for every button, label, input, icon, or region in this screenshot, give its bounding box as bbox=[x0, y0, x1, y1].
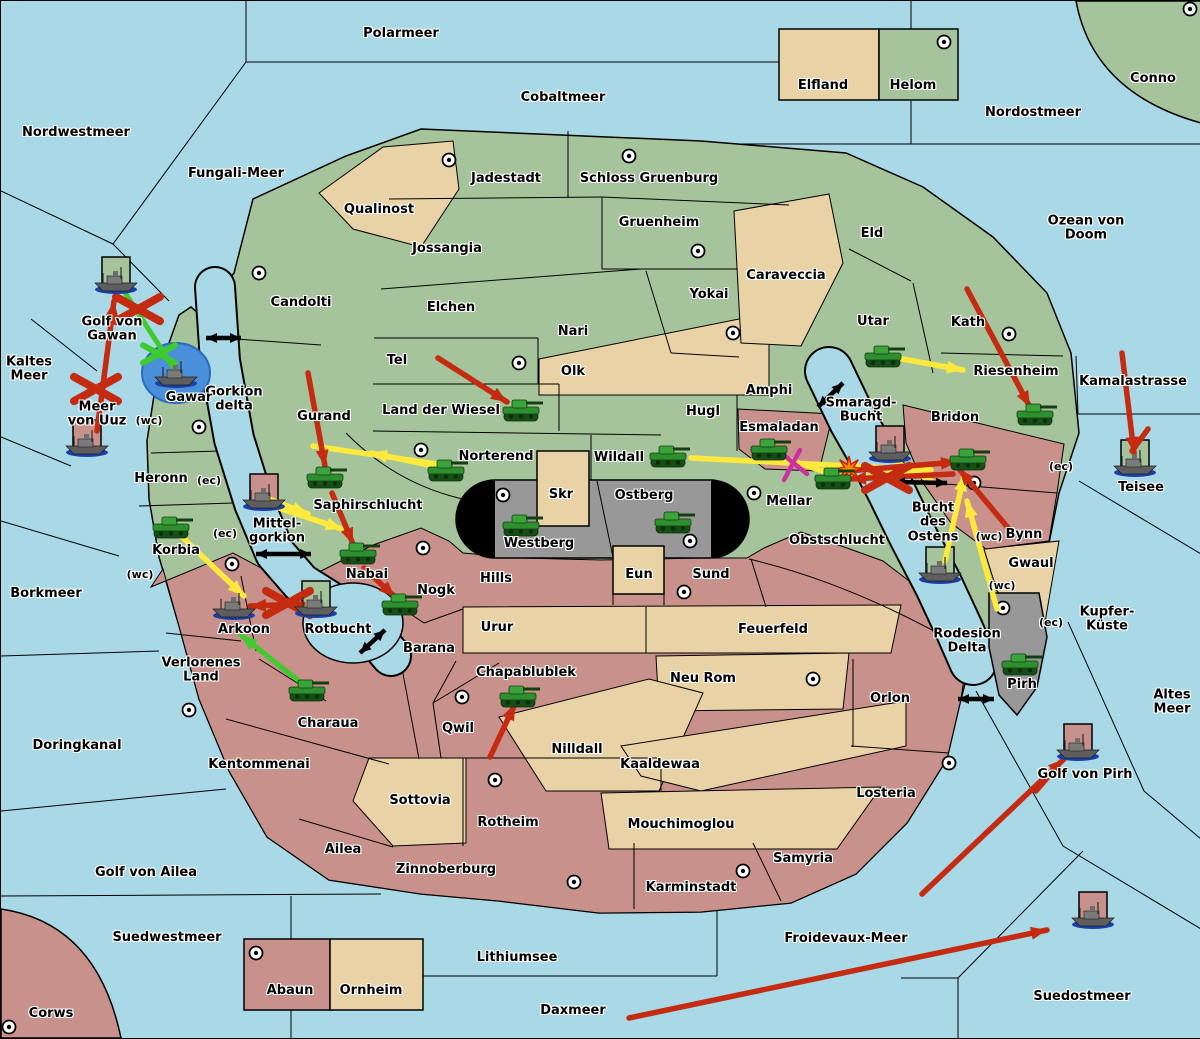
supply-center-dot bbox=[183, 704, 196, 717]
conno-corner bbox=[1076, 1, 1200, 123]
supply-center-dot bbox=[497, 489, 510, 502]
supply-center-dot bbox=[568, 876, 581, 889]
diplomacy-game-map: PolarmeerNordwestmeerFungali-MeerCobaltm… bbox=[0, 0, 1200, 1039]
supply-center-dot bbox=[623, 150, 636, 163]
supply-center-dot bbox=[748, 487, 761, 500]
supply-center-dot bbox=[3, 1021, 16, 1034]
elfland-box bbox=[779, 29, 879, 100]
supply-center-dot bbox=[692, 245, 705, 258]
supply-center-dot bbox=[250, 947, 263, 960]
attack-arrow-red bbox=[629, 927, 1047, 1018]
skr-box bbox=[537, 451, 589, 526]
attack-arrow-red bbox=[1122, 353, 1139, 453]
supply-center-dot bbox=[417, 542, 430, 555]
eun-box bbox=[613, 546, 664, 594]
supply-center-dot bbox=[489, 774, 502, 787]
supply-center-dot bbox=[193, 421, 206, 434]
failed-order-x bbox=[116, 297, 160, 321]
supply-center-dot bbox=[727, 327, 740, 340]
supply-center-dot bbox=[1003, 328, 1016, 341]
supply-center-dot bbox=[415, 444, 428, 457]
supply-center-dot bbox=[513, 357, 526, 370]
supply-center-dot bbox=[938, 36, 951, 49]
supply-center-dot bbox=[253, 267, 266, 280]
supply-center-dot bbox=[807, 673, 820, 686]
supply-center-dot bbox=[443, 154, 456, 167]
supply-center-dot bbox=[226, 558, 239, 571]
supply-center-dot bbox=[684, 535, 697, 548]
map-canvas bbox=[1, 1, 1200, 1038]
supply-center-dot bbox=[456, 691, 469, 704]
strait-double-arrow bbox=[958, 694, 994, 704]
supply-center-dot bbox=[678, 586, 691, 599]
supply-center-dot bbox=[737, 865, 750, 878]
corws-corner bbox=[1, 909, 121, 1038]
supply-center-dot bbox=[943, 757, 956, 770]
failed-order-x bbox=[74, 377, 118, 401]
supply-center-dot bbox=[1184, 3, 1197, 16]
ornheim-box bbox=[330, 939, 423, 1010]
